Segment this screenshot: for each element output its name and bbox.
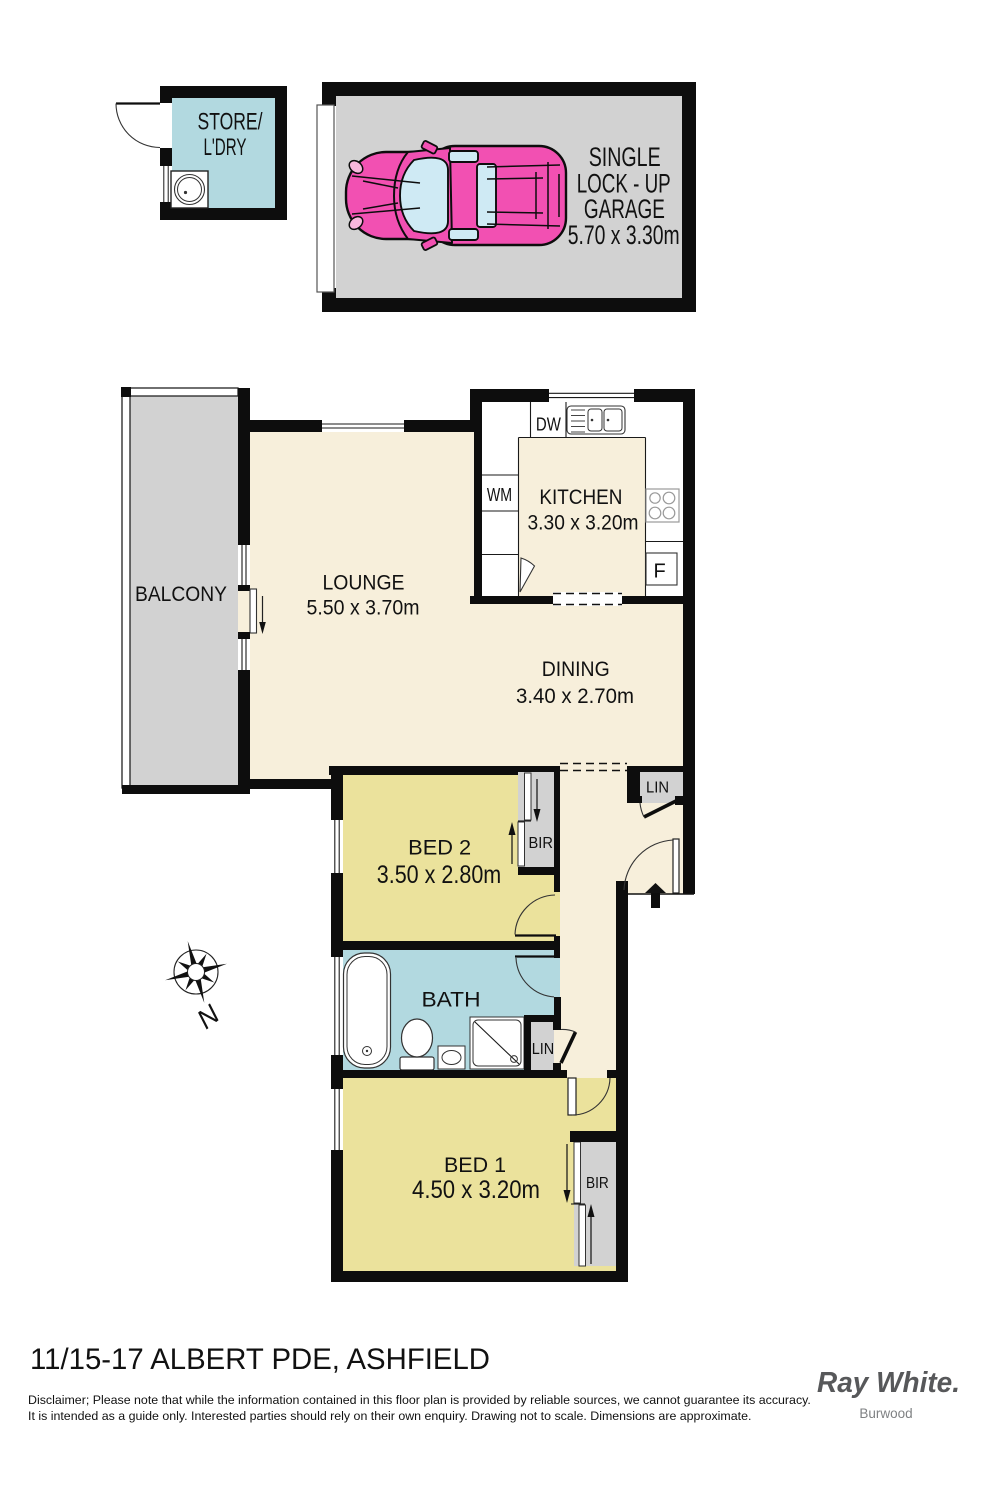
svg-text:3.30 x 3.20m: 3.30 x 3.20m — [528, 512, 639, 535]
svg-text:5.70 x 3.30m: 5.70 x 3.30m — [568, 220, 680, 250]
svg-text:SINGLE: SINGLE — [589, 142, 661, 172]
svg-text:BED 1: BED 1 — [444, 1153, 506, 1177]
svg-text:5.50 x 3.70m: 5.50 x 3.70m — [307, 596, 420, 619]
svg-text:LIN: LIN — [532, 1041, 555, 1058]
svg-text:Disclaimer; Please note that w: Disclaimer; Please note that while the i… — [28, 1393, 811, 1407]
svg-text:F: F — [653, 561, 665, 583]
svg-text:KITCHEN: KITCHEN — [539, 486, 622, 509]
svg-text:BIR: BIR — [586, 1175, 609, 1192]
svg-text:STORE/: STORE/ — [198, 109, 263, 136]
svg-text:BIR: BIR — [529, 835, 553, 852]
svg-text:BATH: BATH — [422, 989, 481, 1012]
svg-text:It is intended as a guide only: It is intended as a guide only. Interest… — [28, 1409, 751, 1423]
svg-text:LIN: LIN — [646, 780, 669, 797]
svg-text:4.50 x 3.20m: 4.50 x 3.20m — [412, 1176, 540, 1204]
svg-text:BALCONY: BALCONY — [135, 582, 227, 606]
svg-text:Ray White.: Ray White. — [817, 1367, 960, 1399]
svg-text:DW: DW — [536, 414, 561, 434]
svg-text:BED 2: BED 2 — [408, 836, 471, 860]
svg-text:3.40 x 2.70m: 3.40 x 2.70m — [516, 684, 634, 708]
svg-text:3.50 x 2.80m: 3.50 x 2.80m — [377, 861, 502, 889]
svg-text:L'DRY: L'DRY — [204, 134, 247, 161]
svg-text:LOUNGE: LOUNGE — [323, 572, 405, 595]
svg-text:11/15-17 ALBERT PDE, ASHFIELD: 11/15-17 ALBERT PDE, ASHFIELD — [30, 1343, 490, 1376]
svg-text:DINING: DINING — [542, 658, 610, 681]
svg-text:WM: WM — [487, 485, 512, 505]
svg-text:Burwood: Burwood — [859, 1406, 912, 1421]
